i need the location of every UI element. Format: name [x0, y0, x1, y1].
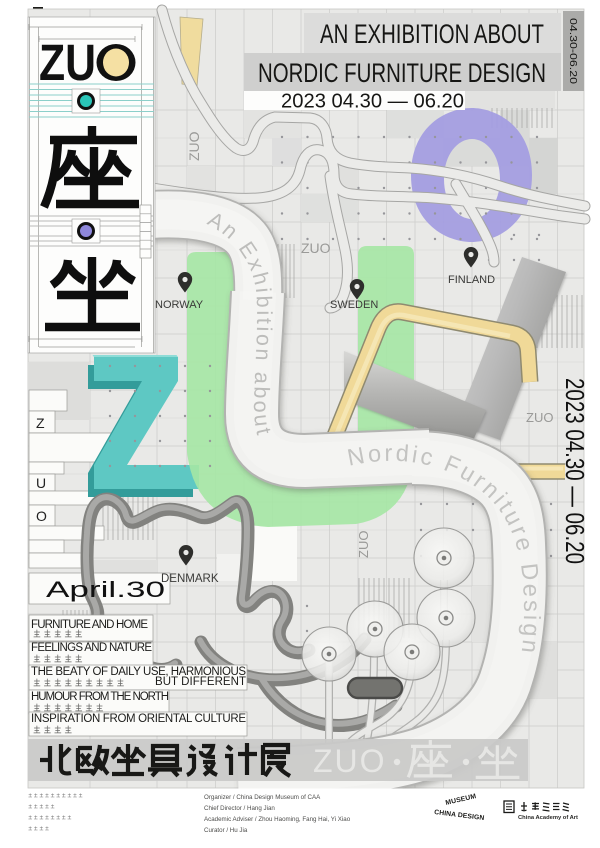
svg-text:DENMARK: DENMARK: [161, 573, 219, 585]
svg-text:Academic Adviser / Zhou Haomin: Academic Adviser / Zhou Haoming, Fang Ha…: [204, 816, 351, 823]
svg-text:2023 04.30 — 06.20: 2023 04.30 — 06.20: [281, 90, 464, 113]
svg-text:U: U: [36, 475, 46, 491]
svg-text:Organizer / China Design Museu: Organizer / China Design Museum of CAA: [204, 794, 321, 801]
svg-text:O: O: [36, 508, 47, 524]
svg-text:FURNITURE AND HOME: FURNITURE AND HOME: [31, 619, 148, 631]
svg-text:ZU: ZU: [39, 34, 96, 91]
svg-text:Z: Z: [36, 415, 45, 431]
svg-text:ZUO: ZUO: [313, 743, 387, 779]
svg-text:ZUO: ZUO: [301, 240, 331, 256]
svg-text:FEELINGS AND NATURE: FEELINGS AND NATURE: [31, 642, 152, 654]
svg-text:ZUO: ZUO: [356, 531, 371, 558]
svg-text:Curator / Hu Jia: Curator / Hu Jia: [204, 827, 248, 834]
svg-text:04.30-06.20: 04.30-06.20: [567, 18, 578, 85]
svg-text:AN EXHIBITION ABOUT: AN EXHIBITION ABOUT: [320, 19, 544, 49]
svg-text:April.30: April.30: [46, 577, 165, 602]
svg-text:FINLAND: FINLAND: [448, 274, 495, 286]
svg-text:China Academy of Art: China Academy of Art: [518, 815, 578, 821]
svg-text:ZUO: ZUO: [526, 410, 553, 425]
svg-text:BUT DIFFERENT: BUT DIFFERENT: [155, 676, 246, 688]
svg-text:NORWAY: NORWAY: [155, 299, 204, 311]
svg-text:INSPIRATION FROM ORIENTAL CULT: INSPIRATION FROM ORIENTAL CULTURE: [31, 713, 246, 725]
svg-text:HUMOUR FROM THE NORTH: HUMOUR FROM THE NORTH: [31, 691, 169, 703]
svg-text:SWEDEN: SWEDEN: [330, 299, 378, 311]
svg-text:2023 04.30 — 06.20: 2023 04.30 — 06.20: [560, 378, 590, 564]
svg-text:Chief Director / Hang Jian: Chief Director / Hang Jian: [204, 805, 275, 812]
svg-text:NORDIC FURNITURE DESIGN: NORDIC FURNITURE DESIGN: [258, 58, 546, 88]
svg-text:ZUO: ZUO: [186, 131, 202, 161]
